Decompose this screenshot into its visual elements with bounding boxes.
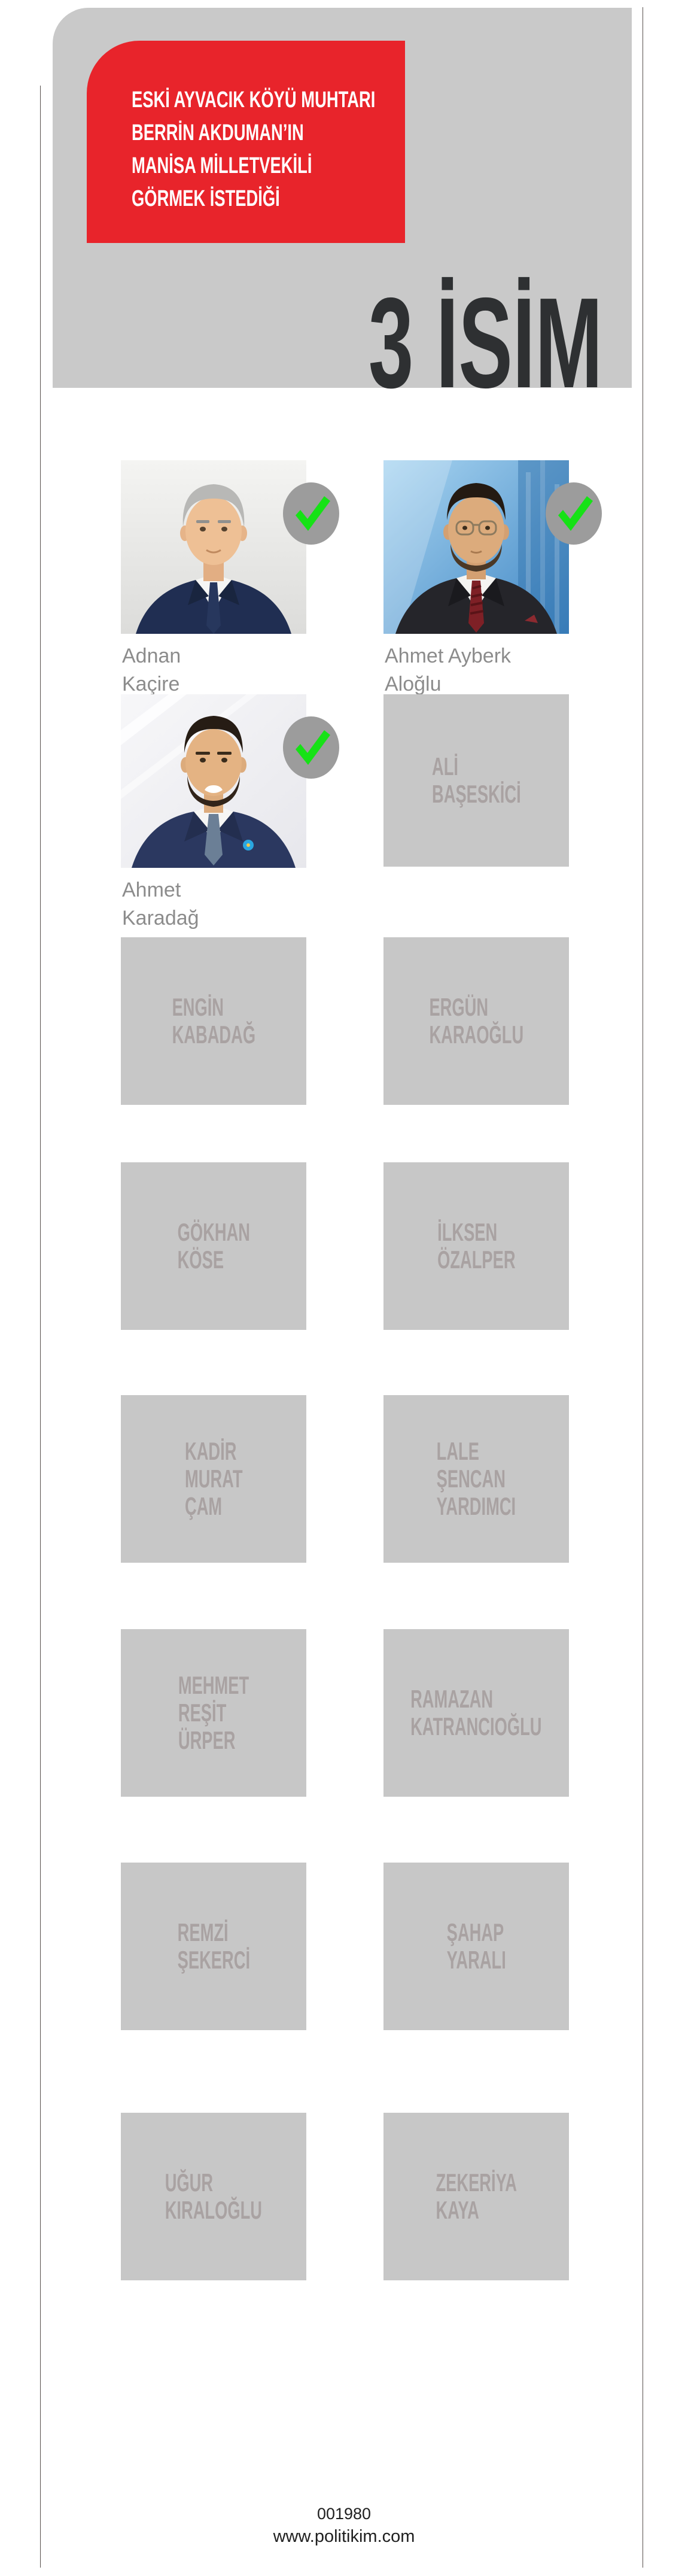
name-box-text: GÖKHAN KÖSE xyxy=(177,1219,249,1274)
infographic-page: ESKİ AYVACIK KÖYÜ MUHTARI BERRİN AKDUMAN… xyxy=(0,0,688,2576)
page-title: 3 İSİM xyxy=(369,278,602,407)
name-box-ergun-karaoglu: ERGÜN KARAOĞLU xyxy=(383,937,569,1105)
check-badge xyxy=(282,482,340,545)
name-box-kadir-murat-cam: KADİR MURAT ÇAM xyxy=(121,1395,306,1563)
photo-card-adnan-kacire: Adnan Kaçire xyxy=(121,460,306,634)
photo-card-ahmet-karadag: Ahmet Karadağ xyxy=(121,694,306,868)
name-box-text: KADİR MURAT ÇAM xyxy=(185,1438,243,1520)
portrait-photo xyxy=(383,460,569,634)
name-box-text: ŞAHAP YARALI xyxy=(446,1919,506,1974)
photo-caption: Ahmet Karadağ xyxy=(122,876,199,932)
left-frame-line xyxy=(40,86,41,2568)
name-box-text: UĞUR KIRALOĞLU xyxy=(165,2169,262,2224)
photo-caption: Ahmet Ayberk Aloğlu xyxy=(385,642,511,698)
headline-line: ESKİ AYVACIK KÖYÜ MUHTARI xyxy=(132,84,328,117)
name-box-text: REMZİ ŞEKERCİ xyxy=(177,1919,249,1974)
name-box-mehmet-resit-urper: MEHMET REŞİT ÜRPER xyxy=(121,1629,306,1797)
name-box-text: ALİ BAŞESKİCİ xyxy=(432,753,521,808)
name-box-remzi-sekerci: REMZİ ŞEKERCİ xyxy=(121,1863,306,2030)
name-box-text: ZEKERİYA KAYA xyxy=(436,2169,517,2224)
headline-box: ESKİ AYVACIK KÖYÜ MUHTARI BERRİN AKDUMAN… xyxy=(87,41,405,243)
headline-line: GÖRMEK İSTEDİĞİ xyxy=(132,183,328,215)
footer: 001980 www.politikim.com xyxy=(0,2503,688,2548)
name-box-text: RAMAZAN KATRANCIOĞLU xyxy=(410,1685,541,1740)
name-box-text: LALE ŞENCAN YARDIMCI xyxy=(437,1438,516,1520)
photo-card-ahmet-ayberk-aloglu: Ahmet Ayberk Aloğlu xyxy=(383,460,569,634)
name-box-engin-kabadag: ENGİN KABADAĞ xyxy=(121,937,306,1105)
headline-line: BERRİN AKDUMAN’IN xyxy=(132,117,328,150)
right-frame-line xyxy=(643,7,643,2568)
photo-caption: Adnan Kaçire xyxy=(122,642,181,698)
portrait-photo xyxy=(121,694,306,868)
name-box-ramazan-katrancioglu: RAMAZAN KATRANCIOĞLU xyxy=(383,1629,569,1797)
name-box-sahap-yarali: ŞAHAP YARALI xyxy=(383,1863,569,2030)
name-box-ugur-kiraloglu: UĞUR KIRALOĞLU xyxy=(121,2113,306,2280)
name-box-text: ENGİN KABADAĞ xyxy=(172,994,255,1049)
check-badge xyxy=(282,716,340,779)
name-box-gokhan-kose: GÖKHAN KÖSE xyxy=(121,1162,306,1330)
name-box-text: ERGÜN KARAOĞLU xyxy=(429,994,523,1049)
name-box-ali-baseskici: ALİ BAŞESKİCİ xyxy=(383,694,569,867)
name-box-lale-sencan-yardimci: LALE ŞENCAN YARDIMCI xyxy=(383,1395,569,1563)
name-box-ilksen-ozalper: İLKSEN ÖZALPER xyxy=(383,1162,569,1330)
footer-code: 001980 xyxy=(0,2503,688,2525)
headline-line: MANİSA MİLLETVEKİLİ xyxy=(132,150,328,183)
check-badge xyxy=(545,482,602,545)
name-box-text: MEHMET REŞİT ÜRPER xyxy=(178,1672,249,1754)
name-box-text: İLKSEN ÖZALPER xyxy=(437,1219,515,1274)
footer-url: www.politikim.com xyxy=(0,2525,688,2548)
name-box-zekeriya-kaya: ZEKERİYA KAYA xyxy=(383,2113,569,2280)
portrait-photo xyxy=(121,460,306,634)
